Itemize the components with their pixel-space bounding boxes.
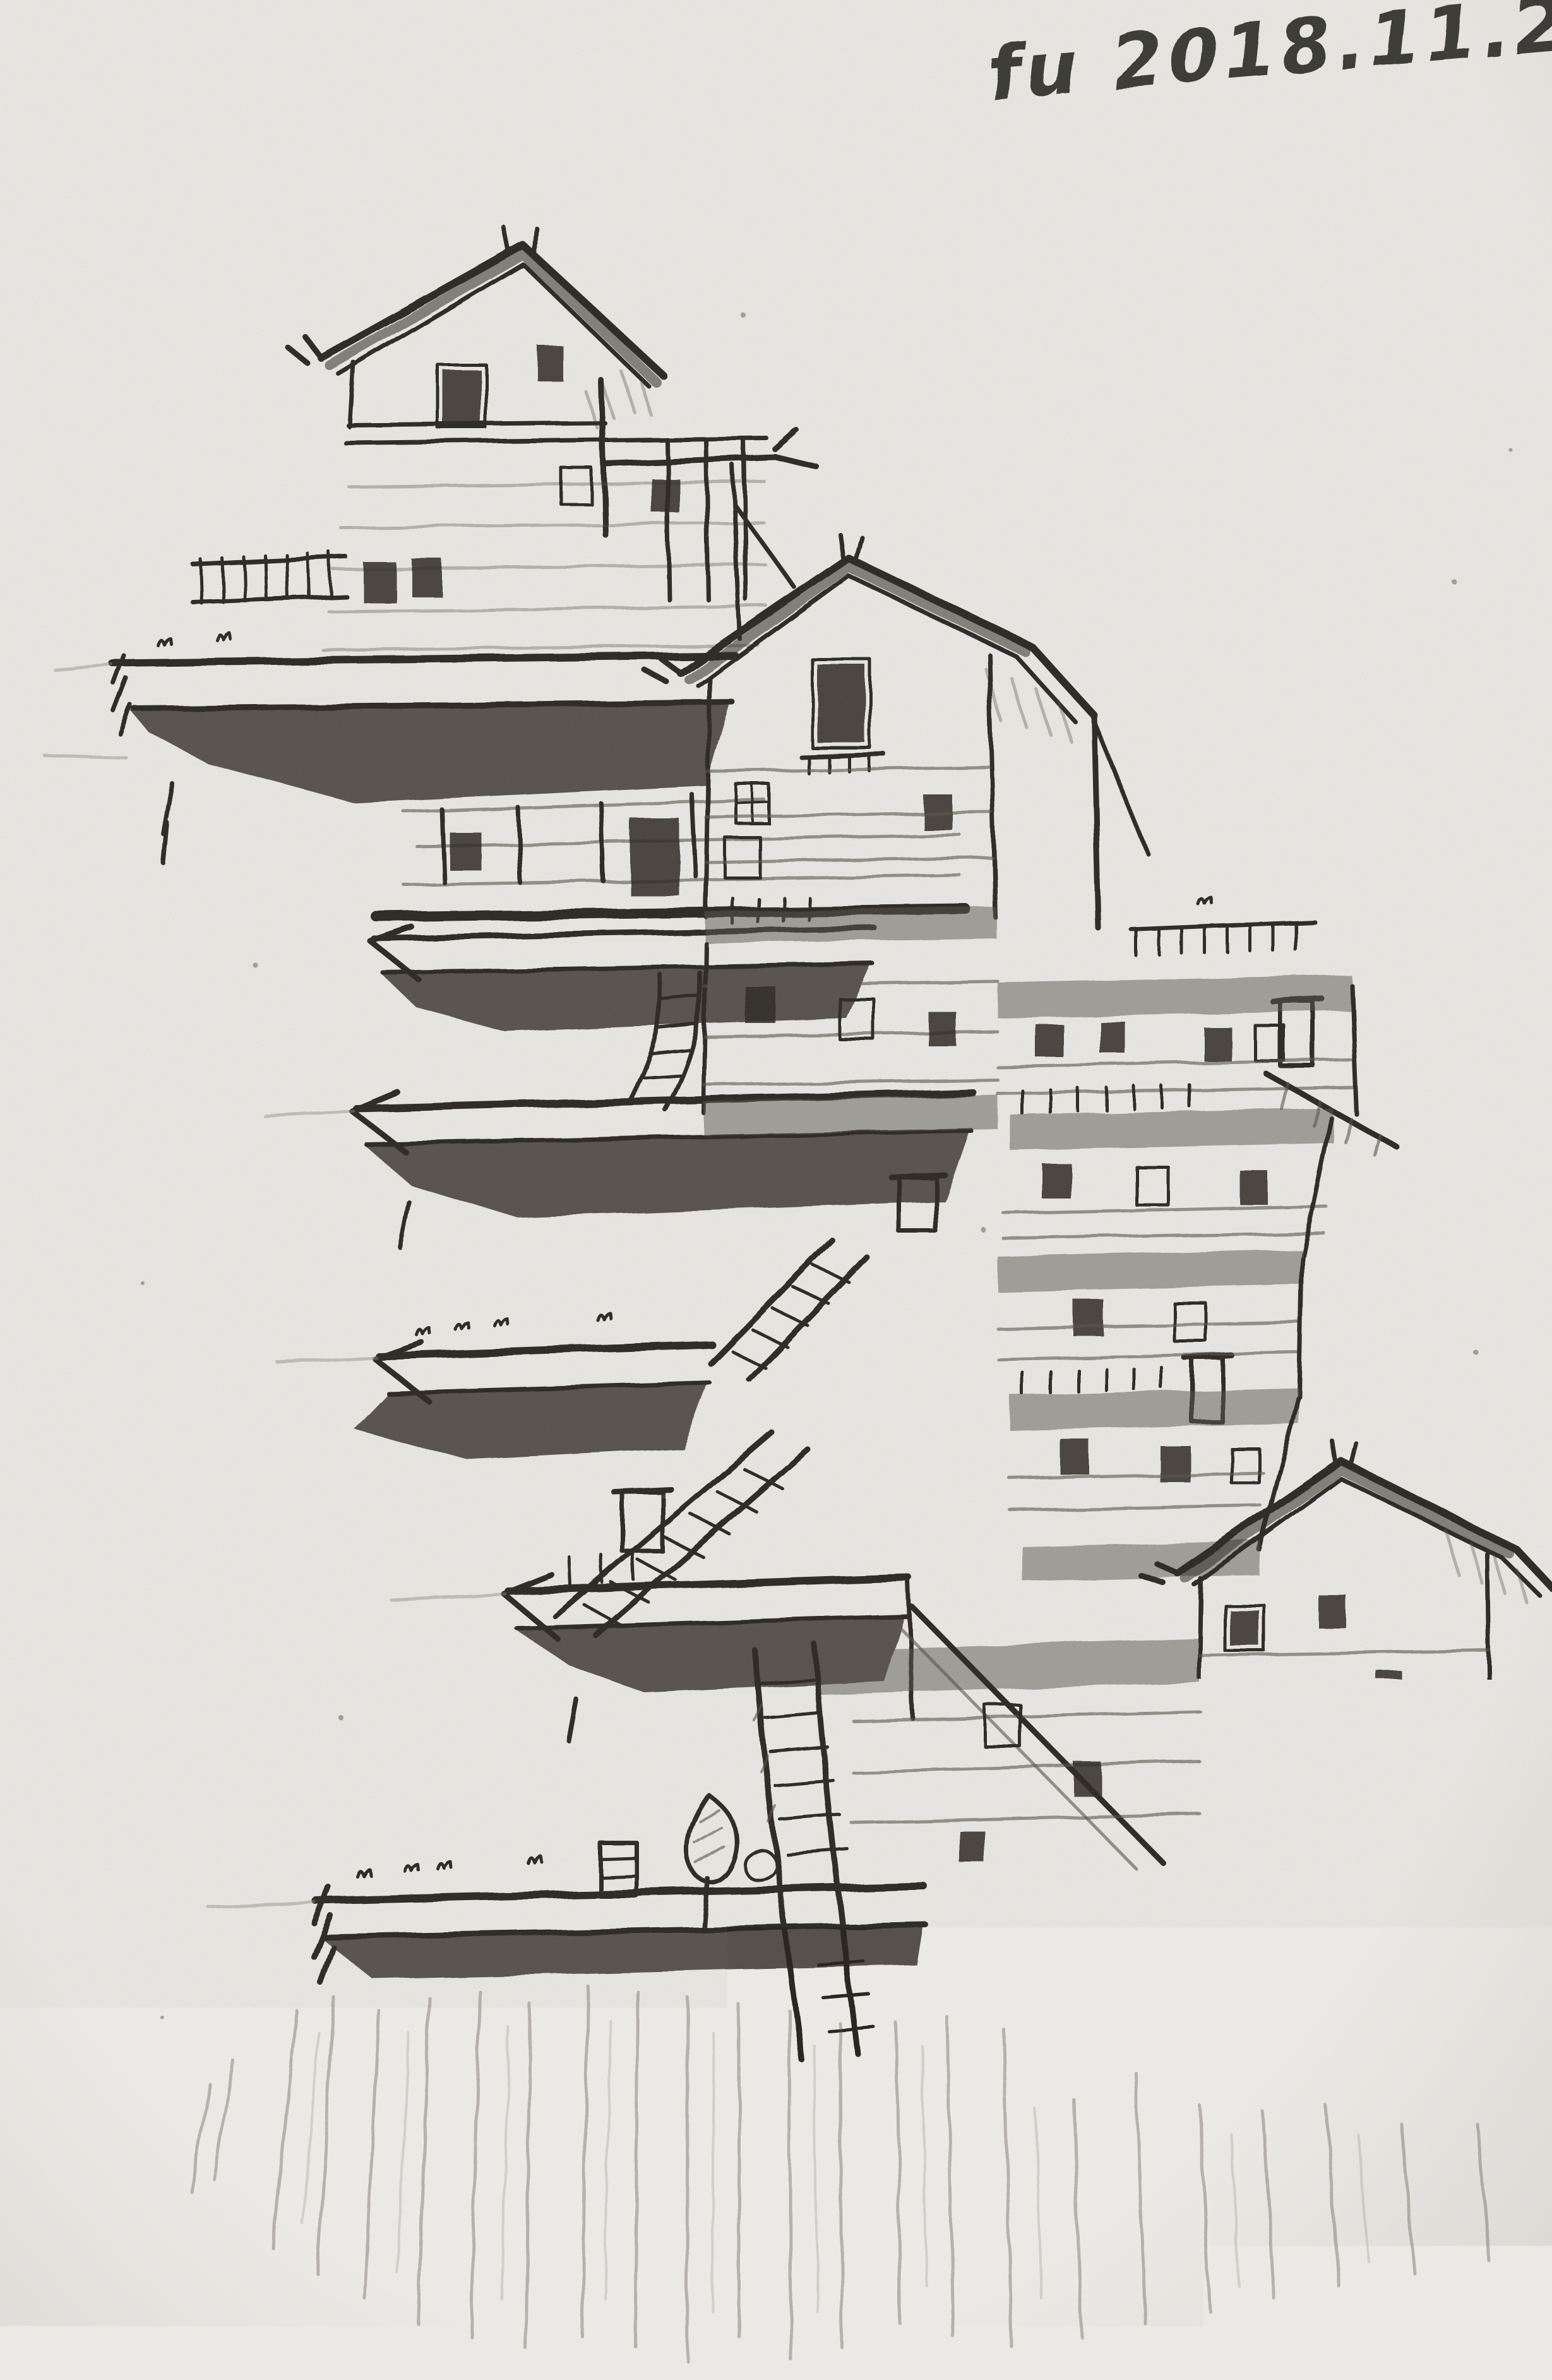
paper-grain [0, 0, 1552, 2380]
pencil-sketch: fu 2018.11.23. [0, 0, 1552, 2380]
sketchbook-page: fu 2018.11.23. [0, 0, 1552, 2380]
